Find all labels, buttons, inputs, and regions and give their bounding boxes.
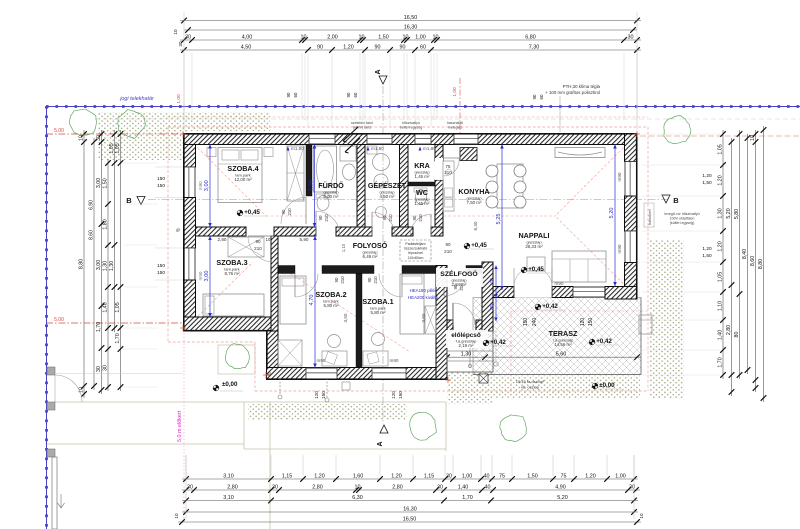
svg-text:B: B	[126, 196, 132, 205]
svg-text:60: 60	[353, 92, 358, 97]
svg-text:75: 75	[499, 473, 505, 479]
svg-text:1,20: 1,20	[343, 44, 354, 50]
svg-text:90: 90	[453, 284, 458, 289]
svg-text:16,30: 16,30	[404, 24, 418, 30]
svg-text:85: 85	[489, 304, 495, 310]
svg-text:4,00: 4,00	[242, 34, 253, 40]
svg-text:15/15 fa oszlop²: 15/15 fa oszlop²	[516, 379, 545, 384]
svg-text:10: 10	[639, 513, 644, 519]
svg-text:100V oldalfalon: 100V oldalfalon	[670, 217, 695, 221]
svg-text:1,20: 1,20	[702, 173, 712, 179]
svg-text:±0,00: ±0,00	[599, 382, 615, 389]
svg-text:90: 90	[400, 44, 406, 50]
svg-text:110x80cm: 110x80cm	[408, 256, 424, 260]
svg-text:30: 30	[178, 41, 183, 47]
svg-text:1,20: 1,20	[702, 246, 712, 252]
svg-text:melegvíz: melegvíz	[448, 126, 463, 130]
svg-text:1,00: 1,00	[462, 473, 473, 479]
svg-text:HEA200 kiváltó: HEA200 kiváltó	[408, 295, 439, 300]
svg-text:150: 150	[157, 270, 165, 276]
svg-text:8,76 m²: 8,76 m²	[225, 271, 240, 276]
svg-text:30: 30	[96, 135, 102, 141]
svg-text:210: 210	[340, 276, 345, 284]
svg-text:8,60: 8,60	[89, 230, 95, 240]
svg-text:1,00: 1,00	[615, 473, 626, 479]
svg-text:240: 240	[532, 318, 538, 327]
svg-text:1,70: 1,70	[115, 333, 121, 343]
svg-text:1,60: 1,60	[353, 473, 364, 479]
svg-text:1,80: 1,80	[103, 219, 109, 229]
svg-text:4,50 m²: 4,50 m²	[380, 194, 395, 199]
svg-text:2,80: 2,80	[227, 484, 238, 490]
svg-text:10: 10	[301, 34, 307, 40]
svg-text:90: 90	[334, 277, 339, 282]
svg-text:210: 210	[418, 214, 423, 222]
svg-text:90: 90	[255, 239, 261, 244]
svg-text:6,00 m²: 6,00 m²	[324, 194, 339, 199]
svg-text:5,00: 5,00	[54, 128, 64, 134]
svg-text:210: 210	[287, 208, 292, 216]
svg-text:150: 150	[588, 318, 594, 327]
svg-text:1,30: 1,30	[461, 352, 472, 358]
svg-text:90: 90	[286, 92, 291, 97]
svg-text:80: 80	[734, 332, 740, 338]
svg-text:5,90: 5,90	[300, 237, 309, 242]
svg-text:10: 10	[403, 34, 409, 40]
svg-text:beltéri egység: beltéri egység	[400, 126, 422, 130]
svg-text:vb. oszlop: vb. oszlop	[521, 385, 540, 390]
svg-text:90: 90	[317, 44, 323, 50]
svg-text:10: 10	[79, 135, 85, 141]
svg-text:levegő-víz hőszivattyú: levegő-víz hőszivattyú	[664, 212, 699, 216]
svg-text:90: 90	[445, 242, 451, 247]
svg-text:4,50: 4,50	[241, 44, 252, 50]
svg-text:1,45 m²: 1,45 m²	[415, 174, 430, 179]
svg-text:1,05: 1,05	[115, 143, 121, 153]
svg-text:6,49 m²: 6,49 m²	[363, 254, 378, 259]
svg-text:5,20: 5,20	[726, 208, 732, 218]
svg-text:30: 30	[437, 484, 443, 490]
svg-text:5,20: 5,20	[609, 208, 615, 219]
svg-text:150: 150	[321, 391, 326, 399]
svg-text:1,00: 1,00	[415, 34, 426, 40]
svg-text:m90: m90	[555, 281, 564, 286]
svg-text:30: 30	[96, 366, 102, 372]
svg-text:+0,42: +0,42	[542, 303, 558, 310]
svg-text:150: 150	[157, 183, 165, 189]
svg-text:30: 30	[103, 365, 109, 371]
svg-text:150: 150	[157, 176, 165, 182]
svg-text:+0,45: +0,45	[471, 242, 487, 249]
svg-text:összecsukható: összecsukható	[404, 247, 427, 251]
svg-text:1,45 m²: 1,45 m²	[415, 201, 430, 206]
svg-text:m1,80: m1,80	[291, 146, 304, 151]
svg-text:10: 10	[359, 34, 365, 40]
svg-text:5,60: 5,60	[556, 352, 567, 358]
svg-text:210: 210	[373, 276, 378, 284]
svg-text:60: 60	[539, 94, 544, 99]
svg-text:1,20: 1,20	[718, 175, 724, 185]
svg-text:6,30: 6,30	[473, 221, 478, 230]
svg-text:1,40: 1,40	[718, 330, 724, 340]
svg-text:8,80: 8,80	[758, 259, 764, 269]
svg-text:2,80: 2,80	[312, 484, 323, 490]
svg-text:90: 90	[281, 209, 286, 214]
svg-text:1,10: 1,10	[341, 243, 346, 252]
svg-text:2,19 m²: 2,19 m²	[459, 343, 474, 348]
svg-text:3,00: 3,00	[96, 260, 102, 270]
svg-text:1,05: 1,05	[115, 302, 121, 312]
svg-text:6,80: 6,80	[525, 34, 536, 40]
svg-text:90: 90	[532, 94, 537, 99]
svg-text:3,10: 3,10	[223, 495, 234, 501]
svg-text:+0,45: +0,45	[244, 209, 260, 216]
svg-text:10: 10	[266, 237, 271, 242]
svg-text:2,80: 2,80	[392, 484, 403, 490]
svg-text:7,50 m²: 7,50 m²	[467, 200, 482, 205]
svg-text:5,25: 5,25	[496, 214, 502, 225]
svg-text:m1,80: m1,80	[423, 146, 436, 151]
svg-text:75: 75	[446, 164, 451, 169]
svg-text:10: 10	[173, 29, 178, 35]
svg-text:4,70: 4,70	[309, 295, 315, 306]
svg-text:±0,00: ±0,00	[222, 381, 238, 388]
svg-text:4,90: 4,90	[555, 484, 566, 490]
svg-text:HEA180 pillér: HEA180 pillér	[410, 288, 437, 293]
svg-text:1,05: 1,05	[718, 272, 724, 282]
svg-text:14,56 m²: 14,56 m²	[554, 342, 572, 347]
svg-text:A: A	[375, 69, 382, 74]
svg-text:1,30: 1,30	[103, 261, 109, 271]
svg-text:10: 10	[750, 135, 756, 141]
svg-text:30: 30	[446, 473, 452, 479]
svg-text:30: 30	[272, 484, 278, 490]
svg-text:+0,45: +0,45	[528, 266, 544, 273]
svg-text:+0,42: +0,42	[490, 339, 506, 346]
svg-text:B: B	[673, 196, 679, 205]
svg-text:1,50: 1,50	[527, 473, 538, 479]
svg-text:6,90: 6,90	[89, 200, 95, 210]
svg-text:7,30: 7,30	[529, 44, 540, 50]
svg-text:75: 75	[561, 473, 567, 479]
svg-text:210: 210	[459, 283, 464, 291]
svg-text:jogi telekhatár: jogi telekhatár	[119, 96, 154, 102]
svg-text:26,33 m²: 26,33 m²	[525, 244, 543, 249]
svg-text:150: 150	[523, 318, 529, 327]
svg-text:1,40: 1,40	[458, 484, 469, 490]
svg-text:10: 10	[433, 34, 439, 40]
svg-text:90: 90	[412, 215, 417, 220]
svg-text:3,10: 3,10	[223, 473, 234, 479]
svg-text:1,70: 1,70	[96, 322, 102, 332]
svg-text:8,80: 8,80	[79, 259, 85, 269]
svg-text:90: 90	[367, 277, 372, 282]
svg-text:210: 210	[444, 170, 452, 175]
svg-text:1,00: 1,00	[176, 94, 182, 104]
svg-text:8,40: 8,40	[742, 249, 748, 259]
svg-text:20: 20	[489, 278, 495, 284]
svg-text:szelektív tárol: szelektív tárol	[351, 121, 373, 125]
svg-text:8,60: 8,60	[750, 256, 756, 266]
svg-text:16,50: 16,50	[403, 516, 417, 522]
svg-text:1,30: 1,30	[718, 208, 724, 218]
svg-text:120: 120	[391, 391, 396, 399]
svg-text:210: 210	[324, 214, 329, 222]
svg-text:3,50: 3,50	[343, 313, 348, 322]
svg-text:1,70: 1,70	[718, 357, 724, 367]
svg-text:(kültéri egység): (kültéri egység)	[670, 221, 695, 225]
svg-text:30: 30	[187, 484, 193, 490]
svg-text:hátsókert: hátsókert	[648, 208, 652, 225]
svg-text:30: 30	[185, 34, 191, 40]
svg-text:5,0 m előkert: 5,0 m előkert	[177, 410, 183, 442]
svg-text:1,50: 1,50	[378, 34, 389, 40]
svg-text:120: 120	[580, 318, 586, 327]
svg-text:1,15: 1,15	[282, 473, 293, 479]
svg-text:m90: m90	[198, 181, 203, 190]
svg-text:hőszivattyú: hőszivattyú	[402, 121, 420, 125]
svg-text:1,00: 1,00	[452, 87, 458, 97]
svg-text:1,05: 1,05	[718, 144, 724, 154]
svg-text:3,00: 3,00	[204, 271, 210, 282]
svg-text:16,30: 16,30	[403, 506, 417, 512]
svg-text:m90: m90	[198, 271, 203, 280]
svg-text:30: 30	[628, 34, 634, 40]
svg-text:1,20: 1,20	[718, 241, 724, 251]
svg-text:90: 90	[382, 215, 387, 220]
svg-text:6,30: 6,30	[352, 495, 363, 501]
svg-text:m90: m90	[617, 172, 622, 181]
svg-text:m90: m90	[317, 358, 326, 363]
svg-text:3,00: 3,00	[309, 180, 315, 191]
svg-text:60: 60	[293, 92, 298, 97]
svg-text:150: 150	[157, 263, 165, 269]
svg-text:90: 90	[375, 44, 381, 50]
svg-text:5,00: 5,00	[54, 317, 64, 323]
svg-text:10: 10	[355, 484, 361, 490]
svg-text:1,10: 1,10	[718, 301, 724, 311]
svg-text:5,80 m²: 5,80 m²	[371, 310, 386, 315]
svg-text:1,50: 1,50	[702, 180, 712, 186]
svg-text:1,15: 1,15	[424, 473, 435, 479]
svg-text:2,80: 2,80	[218, 237, 227, 242]
svg-text:1,20: 1,20	[314, 473, 325, 479]
svg-text:5,80 m²: 5,80 m²	[324, 303, 339, 308]
svg-text:m90: m90	[617, 244, 622, 253]
svg-text:1,50: 1,50	[103, 178, 109, 188]
svg-text:3,00: 3,00	[96, 178, 102, 188]
svg-text:+0,42: +0,42	[596, 338, 612, 345]
svg-text:1,70: 1,70	[462, 495, 473, 501]
svg-text:1,20: 1,20	[391, 473, 402, 479]
svg-text:10: 10	[174, 513, 179, 519]
svg-text:90: 90	[318, 215, 323, 220]
svg-text:1,30: 1,30	[109, 261, 115, 271]
svg-text:210: 210	[388, 214, 393, 222]
svg-text:m90: m90	[390, 358, 399, 363]
svg-text:PTH,30 klíma tégla: PTH,30 klíma tégla	[563, 84, 601, 89]
svg-text:40: 40	[484, 473, 490, 479]
svg-text:210: 210	[254, 246, 262, 251]
svg-text:2,00: 2,00	[327, 34, 338, 40]
svg-text:60: 60	[420, 44, 426, 50]
svg-text:2,80: 2,80	[726, 325, 732, 335]
svg-text:150: 150	[398, 391, 403, 399]
svg-text:16,50: 16,50	[404, 15, 418, 21]
svg-text:120: 120	[314, 391, 319, 399]
svg-text:A: A	[377, 441, 384, 446]
svg-text:3,50: 3,50	[421, 313, 426, 322]
svg-text:1,50: 1,50	[702, 253, 712, 259]
svg-text:5,20: 5,20	[557, 495, 568, 501]
svg-text:40: 40	[485, 484, 491, 490]
svg-text:1,20: 1,20	[585, 473, 596, 479]
svg-text:1,40: 1,40	[103, 302, 109, 312]
svg-text:használati: használati	[447, 121, 463, 125]
svg-text:5,80: 5,80	[734, 209, 740, 219]
svg-text:210: 210	[444, 249, 452, 254]
svg-text:12,00 m²: 12,00 m²	[234, 177, 252, 182]
svg-text:Padlásfeljáró: Padlásfeljáró	[405, 242, 425, 246]
svg-text:m1,80: m1,80	[371, 146, 384, 151]
svg-text:3,00: 3,00	[204, 180, 210, 191]
svg-text:90: 90	[346, 92, 351, 97]
svg-text:+ 100 mm grafitos polisztirol: + 100 mm grafitos polisztirol	[545, 90, 600, 95]
svg-text:lépcsővel: lépcsővel	[408, 251, 423, 255]
